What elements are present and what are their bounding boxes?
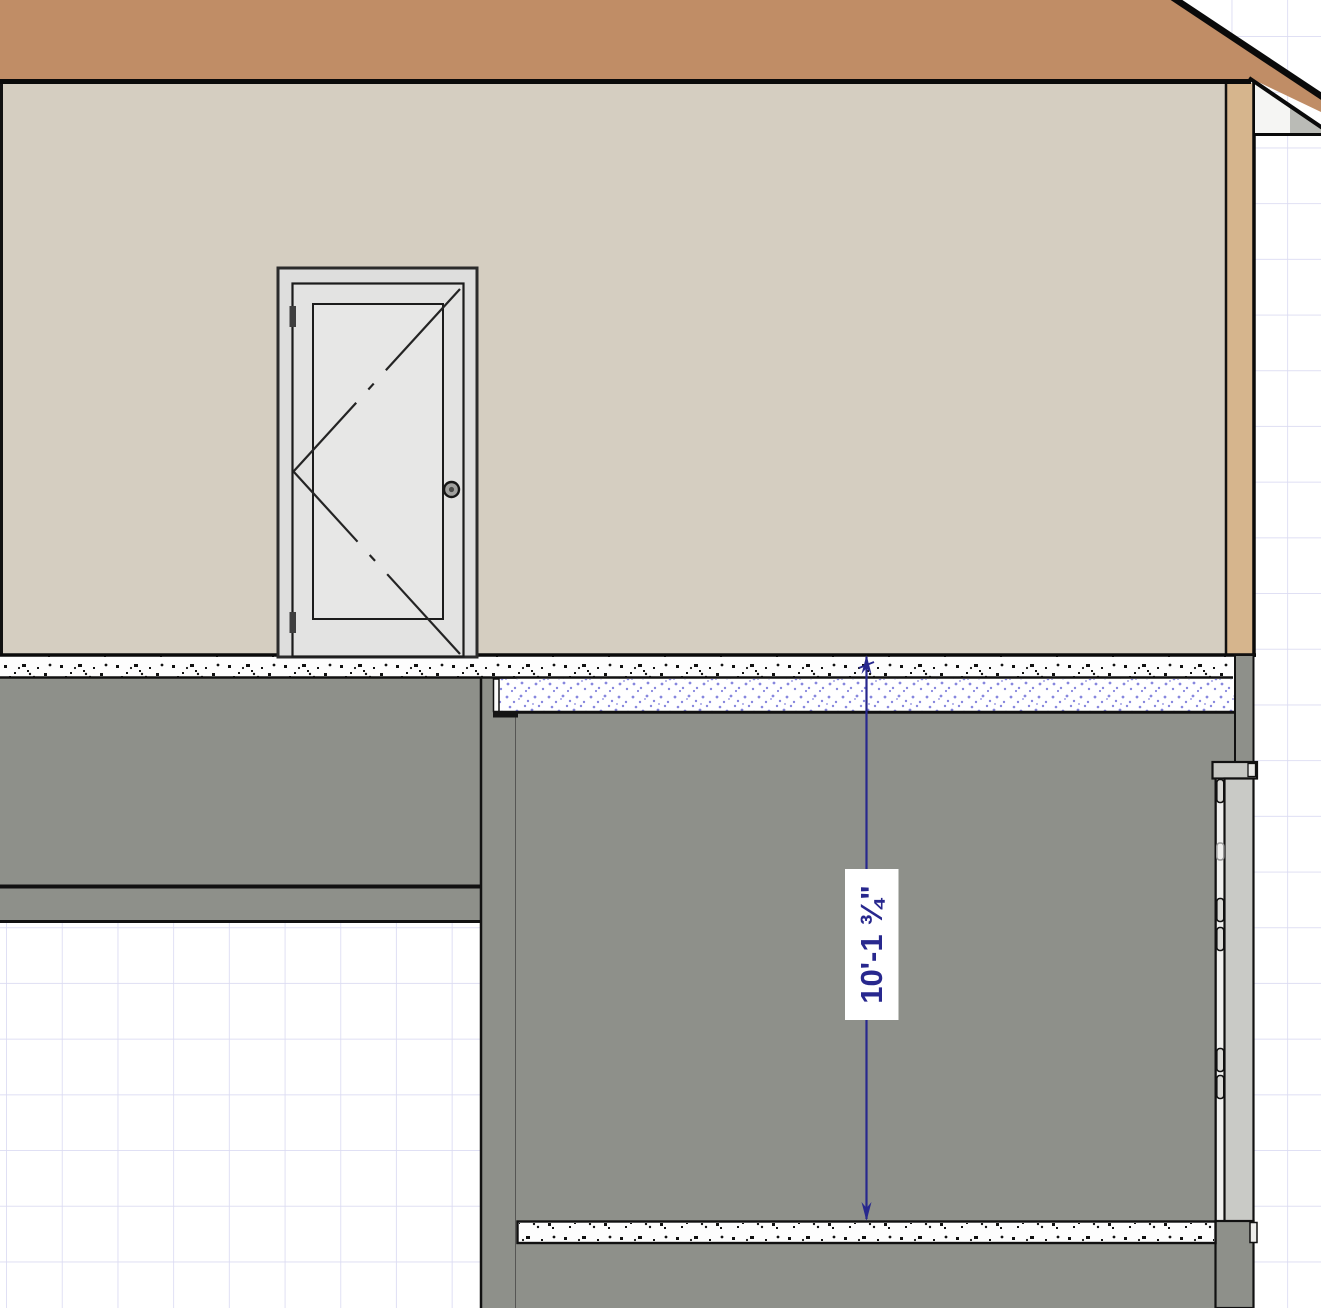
exterior-door[interactable] (278, 268, 477, 657)
door-hinge-lower (290, 612, 297, 633)
door-knob-center (449, 487, 454, 492)
subfloor-speckles (0, 656, 1233, 677)
hinge-bottom-b[interactable] (1217, 1076, 1224, 1099)
sectioned-door-slab[interactable] (1225, 779, 1254, 1222)
hinge-lower-mid[interactable] (1217, 928, 1224, 951)
platform-step (493, 711, 518, 718)
lower-subfloor-speckles (519, 1223, 1214, 1242)
left-wall-section[interactable] (0, 677, 482, 886)
left-wall-ledge[interactable] (0, 889, 484, 922)
lower-floor-platform[interactable] (518, 1222, 1216, 1244)
upper-wall[interactable] (0, 80, 1254, 657)
hinge-upper-mid[interactable] (1217, 899, 1224, 922)
hinge-bottom-a[interactable] (1217, 1049, 1224, 1072)
cad-drawing-canvas[interactable]: 10'-1 ¾" (0, 0, 1321, 1308)
upper-wall-surface[interactable] (0, 83, 1227, 656)
hinge-top[interactable] (1217, 780, 1224, 803)
door-panel[interactable] (313, 304, 443, 619)
right-wall-stub[interactable] (1235, 655, 1254, 766)
door-hinge-upper (290, 306, 297, 327)
dimension-label[interactable]: 10'-1 ¾" (854, 885, 889, 1004)
platform-end-sliver (494, 679, 500, 712)
header-cap-end (1248, 764, 1256, 777)
wall-stud-strip[interactable] (481, 677, 517, 1308)
lower-wall-column[interactable] (1216, 1221, 1254, 1308)
sill-notch (1250, 1223, 1257, 1243)
corner-trim-board[interactable] (1227, 83, 1253, 656)
